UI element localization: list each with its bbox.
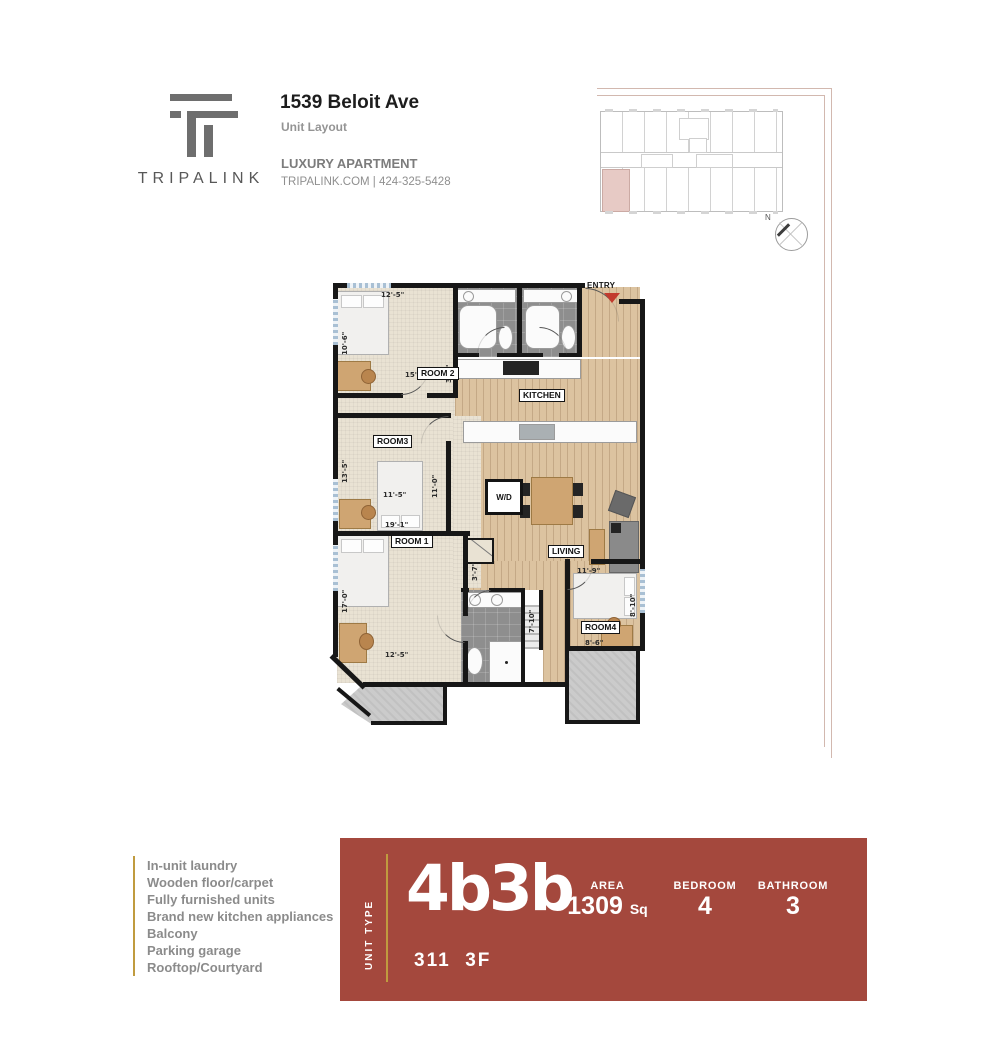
room1-label: ROOM 1 — [391, 535, 433, 548]
dim-room3-left: 13'-5" — [341, 460, 349, 483]
room3-chair — [361, 505, 376, 520]
page: { "header": { "brand": "TRIPALINK", "add… — [0, 0, 996, 1060]
dim-room2-left: 10'-6" — [341, 332, 349, 355]
feature-item: Wooden floor/carpet — [147, 874, 333, 891]
window — [333, 545, 338, 591]
compass-n-label: N — [765, 213, 771, 222]
unit-banner: UNIT TYPE 4b3b 311 3F AREA 1309 Sq BEDRO… — [340, 838, 867, 1001]
brand-wordmark: TRIPALINK — [136, 170, 266, 188]
stove-cooktop — [503, 361, 539, 375]
unit-number-floor: 311 3F — [414, 950, 491, 972]
bedroom-stat: BEDROOM 4 — [670, 880, 740, 921]
window — [347, 283, 391, 288]
storage-wood-floor — [543, 590, 565, 682]
area-label: AREA — [550, 880, 665, 892]
window — [333, 479, 338, 521]
logo-bar-stem-right — [204, 125, 213, 157]
dim-room4-bottom: 8'-6" — [585, 639, 603, 647]
feature-item: Parking garage — [147, 942, 333, 959]
sofa-pillow — [611, 523, 621, 533]
entry-closet — [466, 538, 494, 564]
bath-bottom-sink — [491, 594, 503, 606]
pillow — [363, 539, 384, 553]
window — [333, 299, 338, 345]
feature-item: In-unit laundry — [147, 857, 333, 874]
kitchen-label: KITCHEN — [519, 389, 565, 402]
wall — [371, 721, 447, 725]
area-unit: Sq — [630, 901, 648, 917]
wall — [565, 646, 645, 651]
dining-table — [531, 477, 573, 525]
dim-room4-right: 8'-10" — [629, 594, 637, 617]
logo-bar-top — [170, 94, 232, 101]
dim-room4-top: 11'-9" — [577, 567, 600, 575]
area-number: 1309 — [567, 892, 623, 920]
wall — [443, 687, 447, 725]
compass-icon: N — [773, 216, 809, 252]
dim-room1-left: 17'-0" — [341, 590, 349, 613]
room2-label: ROOM 2 — [417, 367, 459, 380]
wall — [489, 588, 525, 592]
logo-mark — [145, 88, 255, 164]
address-title: 1539 Beloit Ave — [280, 92, 419, 114]
shower-drain — [505, 661, 508, 664]
pillow — [341, 539, 362, 553]
unit-type-label: UNIT TYPE — [364, 874, 375, 970]
bathroom-label: BATHROOM — [753, 880, 833, 892]
feature-item: Fully furnished units — [147, 891, 333, 908]
feature-item: Brand new kitchen appliances — [147, 908, 333, 925]
window — [640, 569, 645, 613]
wall — [453, 353, 479, 357]
room3-label: ROOM3 — [373, 435, 412, 448]
contact-line: TRIPALINK.COM | 424-325-5428 — [281, 176, 451, 188]
wall — [463, 536, 468, 616]
luxury-tagline: LUXURY APARTMENT — [281, 156, 418, 171]
entry-label: ENTRY — [587, 281, 615, 290]
wall — [453, 283, 458, 398]
key-plan-highlight-unit — [602, 169, 630, 212]
dining-chair — [573, 483, 583, 496]
floor-plan: W/D ENTRY ROOM 2 ROOM3 ROOM 1 ROOM4 KITC… — [333, 283, 649, 735]
island-sink — [519, 424, 555, 440]
wall — [565, 720, 640, 724]
unit-layout-subtitle: Unit Layout — [281, 120, 347, 134]
logo-bar-stem-left — [187, 111, 196, 157]
wall — [333, 413, 451, 418]
building-key-plan — [600, 111, 783, 212]
wd-label: W/D — [496, 493, 512, 502]
feature-item: Balcony — [147, 925, 333, 942]
washer-dryer-closet: W/D — [485, 479, 523, 515]
wall — [446, 441, 451, 533]
dim-room3-bed: 11'-5" — [383, 491, 406, 499]
room2-chair — [361, 369, 376, 384]
keyplan-core — [689, 138, 707, 153]
keyplan-core — [679, 118, 709, 140]
wall — [591, 559, 640, 564]
bathroom-stat: BATHROOM 3 — [753, 880, 833, 921]
dim-room1-bottom: 12'-5" — [385, 651, 408, 659]
wall — [539, 590, 543, 650]
wall — [333, 393, 403, 398]
bath-bottom-toilet — [466, 647, 483, 675]
area-value: 1309 Sq — [550, 893, 665, 921]
logo-bar-square — [170, 111, 181, 118]
area-stat: AREA 1309 Sq — [550, 880, 665, 921]
wall — [461, 588, 469, 592]
features-accent-line — [133, 856, 135, 976]
wall — [577, 283, 582, 357]
banner-accent-line — [386, 854, 388, 982]
dim-entry-closet: 3'-7" — [471, 563, 479, 581]
wall — [427, 393, 458, 398]
keyplan-balcony-ticks-bottom — [605, 211, 778, 214]
unit-type-value: 4b3b — [406, 852, 572, 925]
wall — [521, 590, 525, 685]
living-label: LIVING — [548, 545, 584, 558]
keyplan-mid-unit — [696, 154, 733, 168]
dim-room1-top: 19'-1" — [385, 521, 408, 529]
pillow — [341, 295, 362, 308]
room4-label: ROOM4 — [581, 621, 620, 634]
wall — [463, 641, 468, 684]
bathroom-value: 3 — [753, 893, 833, 921]
wall — [517, 283, 522, 357]
entry-arrow-icon — [604, 293, 620, 303]
bath-left-sink — [463, 291, 474, 302]
wall — [565, 651, 569, 724]
room1-chair — [359, 633, 374, 650]
bedroom-value: 4 — [670, 893, 740, 921]
dim-room3-right: 11'-0" — [431, 475, 439, 498]
feature-item: Rooftop/Courtyard — [147, 959, 333, 976]
balcony-right-floor — [569, 651, 636, 720]
bath-right-sink — [561, 291, 572, 302]
wall — [636, 651, 640, 724]
dim-hall: 7'-10" — [528, 610, 536, 633]
dining-chair — [573, 505, 583, 518]
bedroom-label: BEDROOM — [670, 880, 740, 892]
keyplan-mid-unit — [641, 154, 673, 168]
dim-room2-width: 15' — [405, 371, 417, 379]
dim-room2-top: 12'-5" — [381, 291, 404, 299]
features-list: In-unit laundry Wooden floor/carpet Full… — [147, 857, 333, 976]
